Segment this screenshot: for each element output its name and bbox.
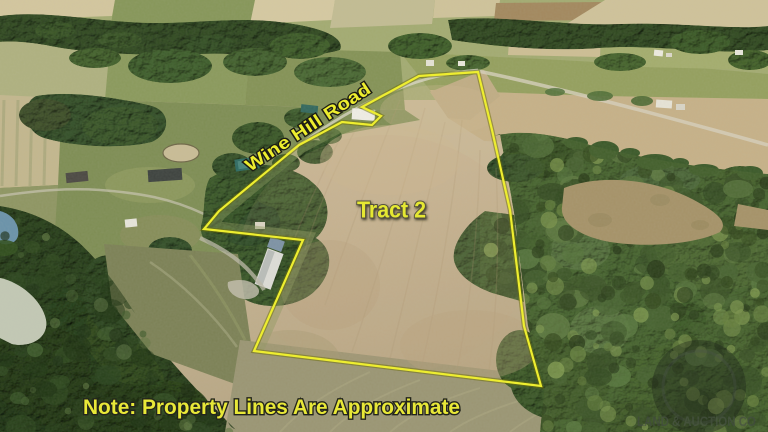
svg-text:Note: Property Lines Are Appro: Note: Property Lines Are Approximate	[83, 395, 460, 419]
svg-text:Tract 2: Tract 2	[357, 197, 426, 223]
svg-text:LAND & AUCTION CO: LAND & AUCTION CO	[637, 414, 756, 429]
